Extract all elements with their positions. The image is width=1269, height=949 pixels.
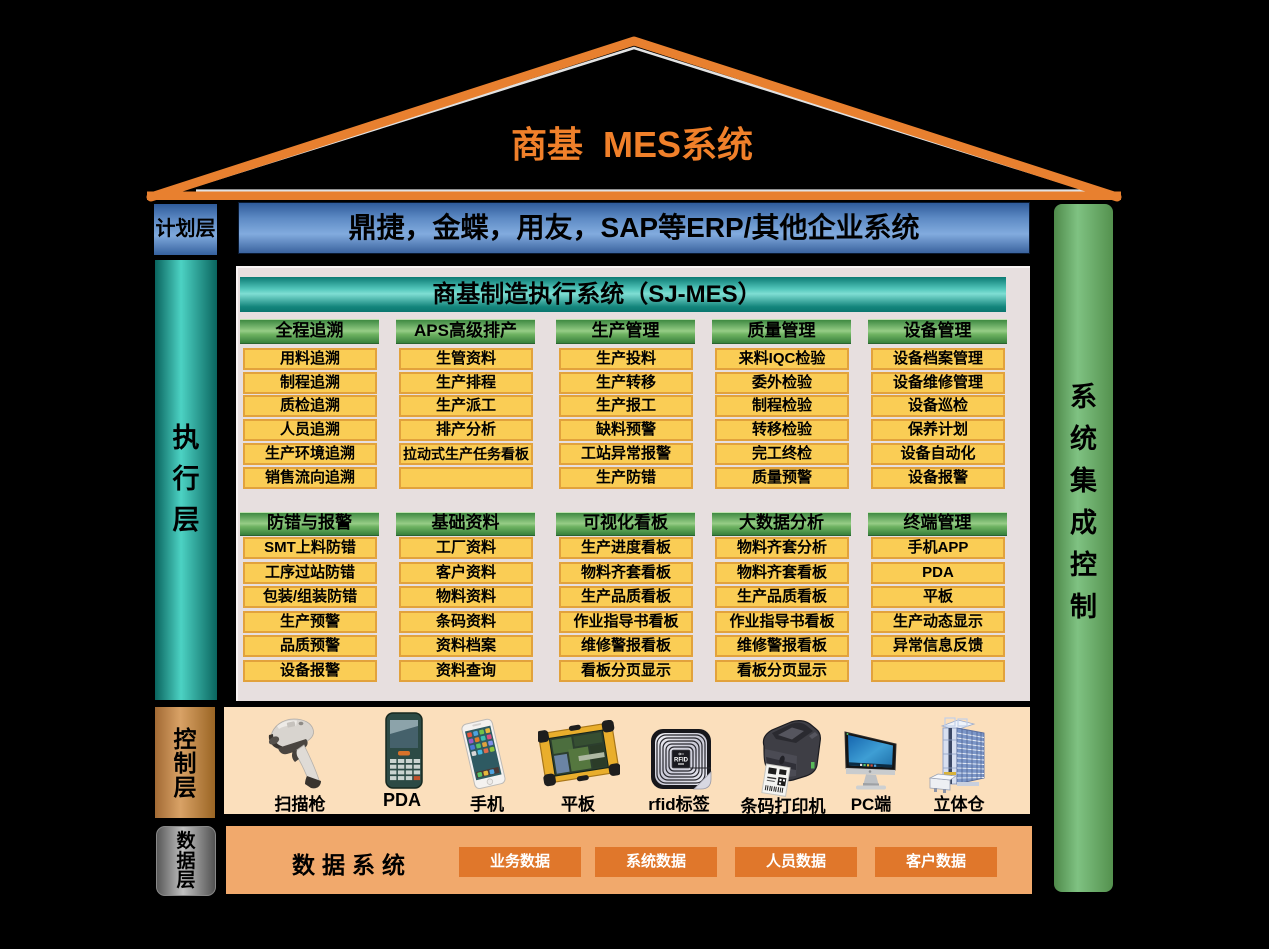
svg-text:RFID: RFID	[674, 758, 689, 764]
